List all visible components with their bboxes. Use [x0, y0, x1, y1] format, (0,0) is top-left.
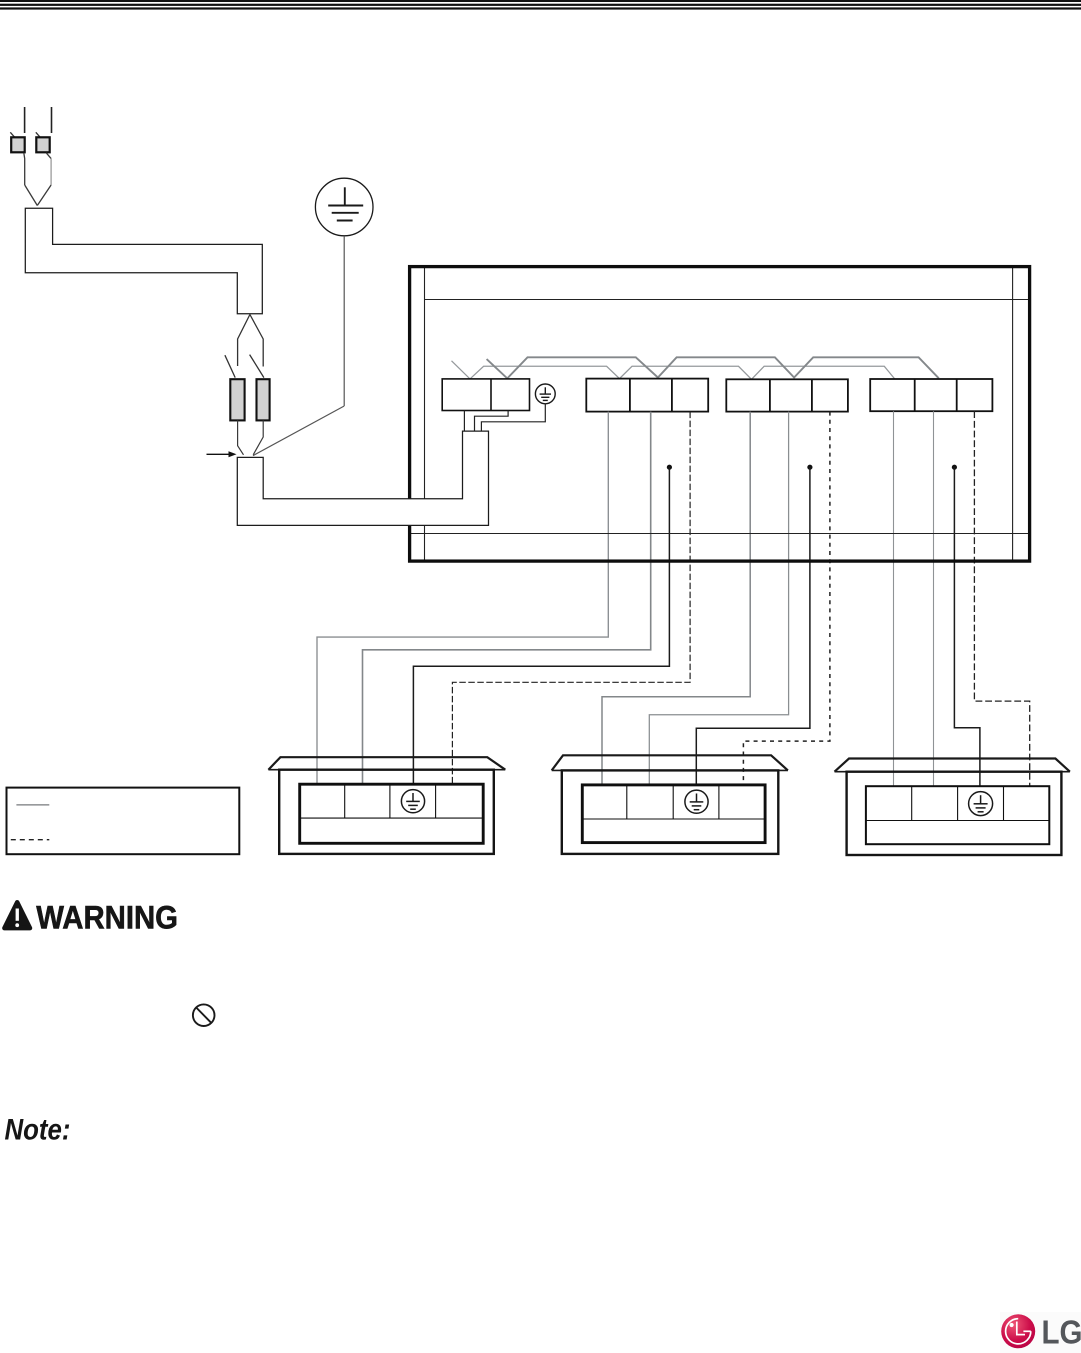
svg-text:WARNING: WARNING [36, 900, 178, 936]
svg-text:LG: LG [1042, 1315, 1081, 1352]
svg-text:Note:: Note: [5, 1114, 71, 1147]
